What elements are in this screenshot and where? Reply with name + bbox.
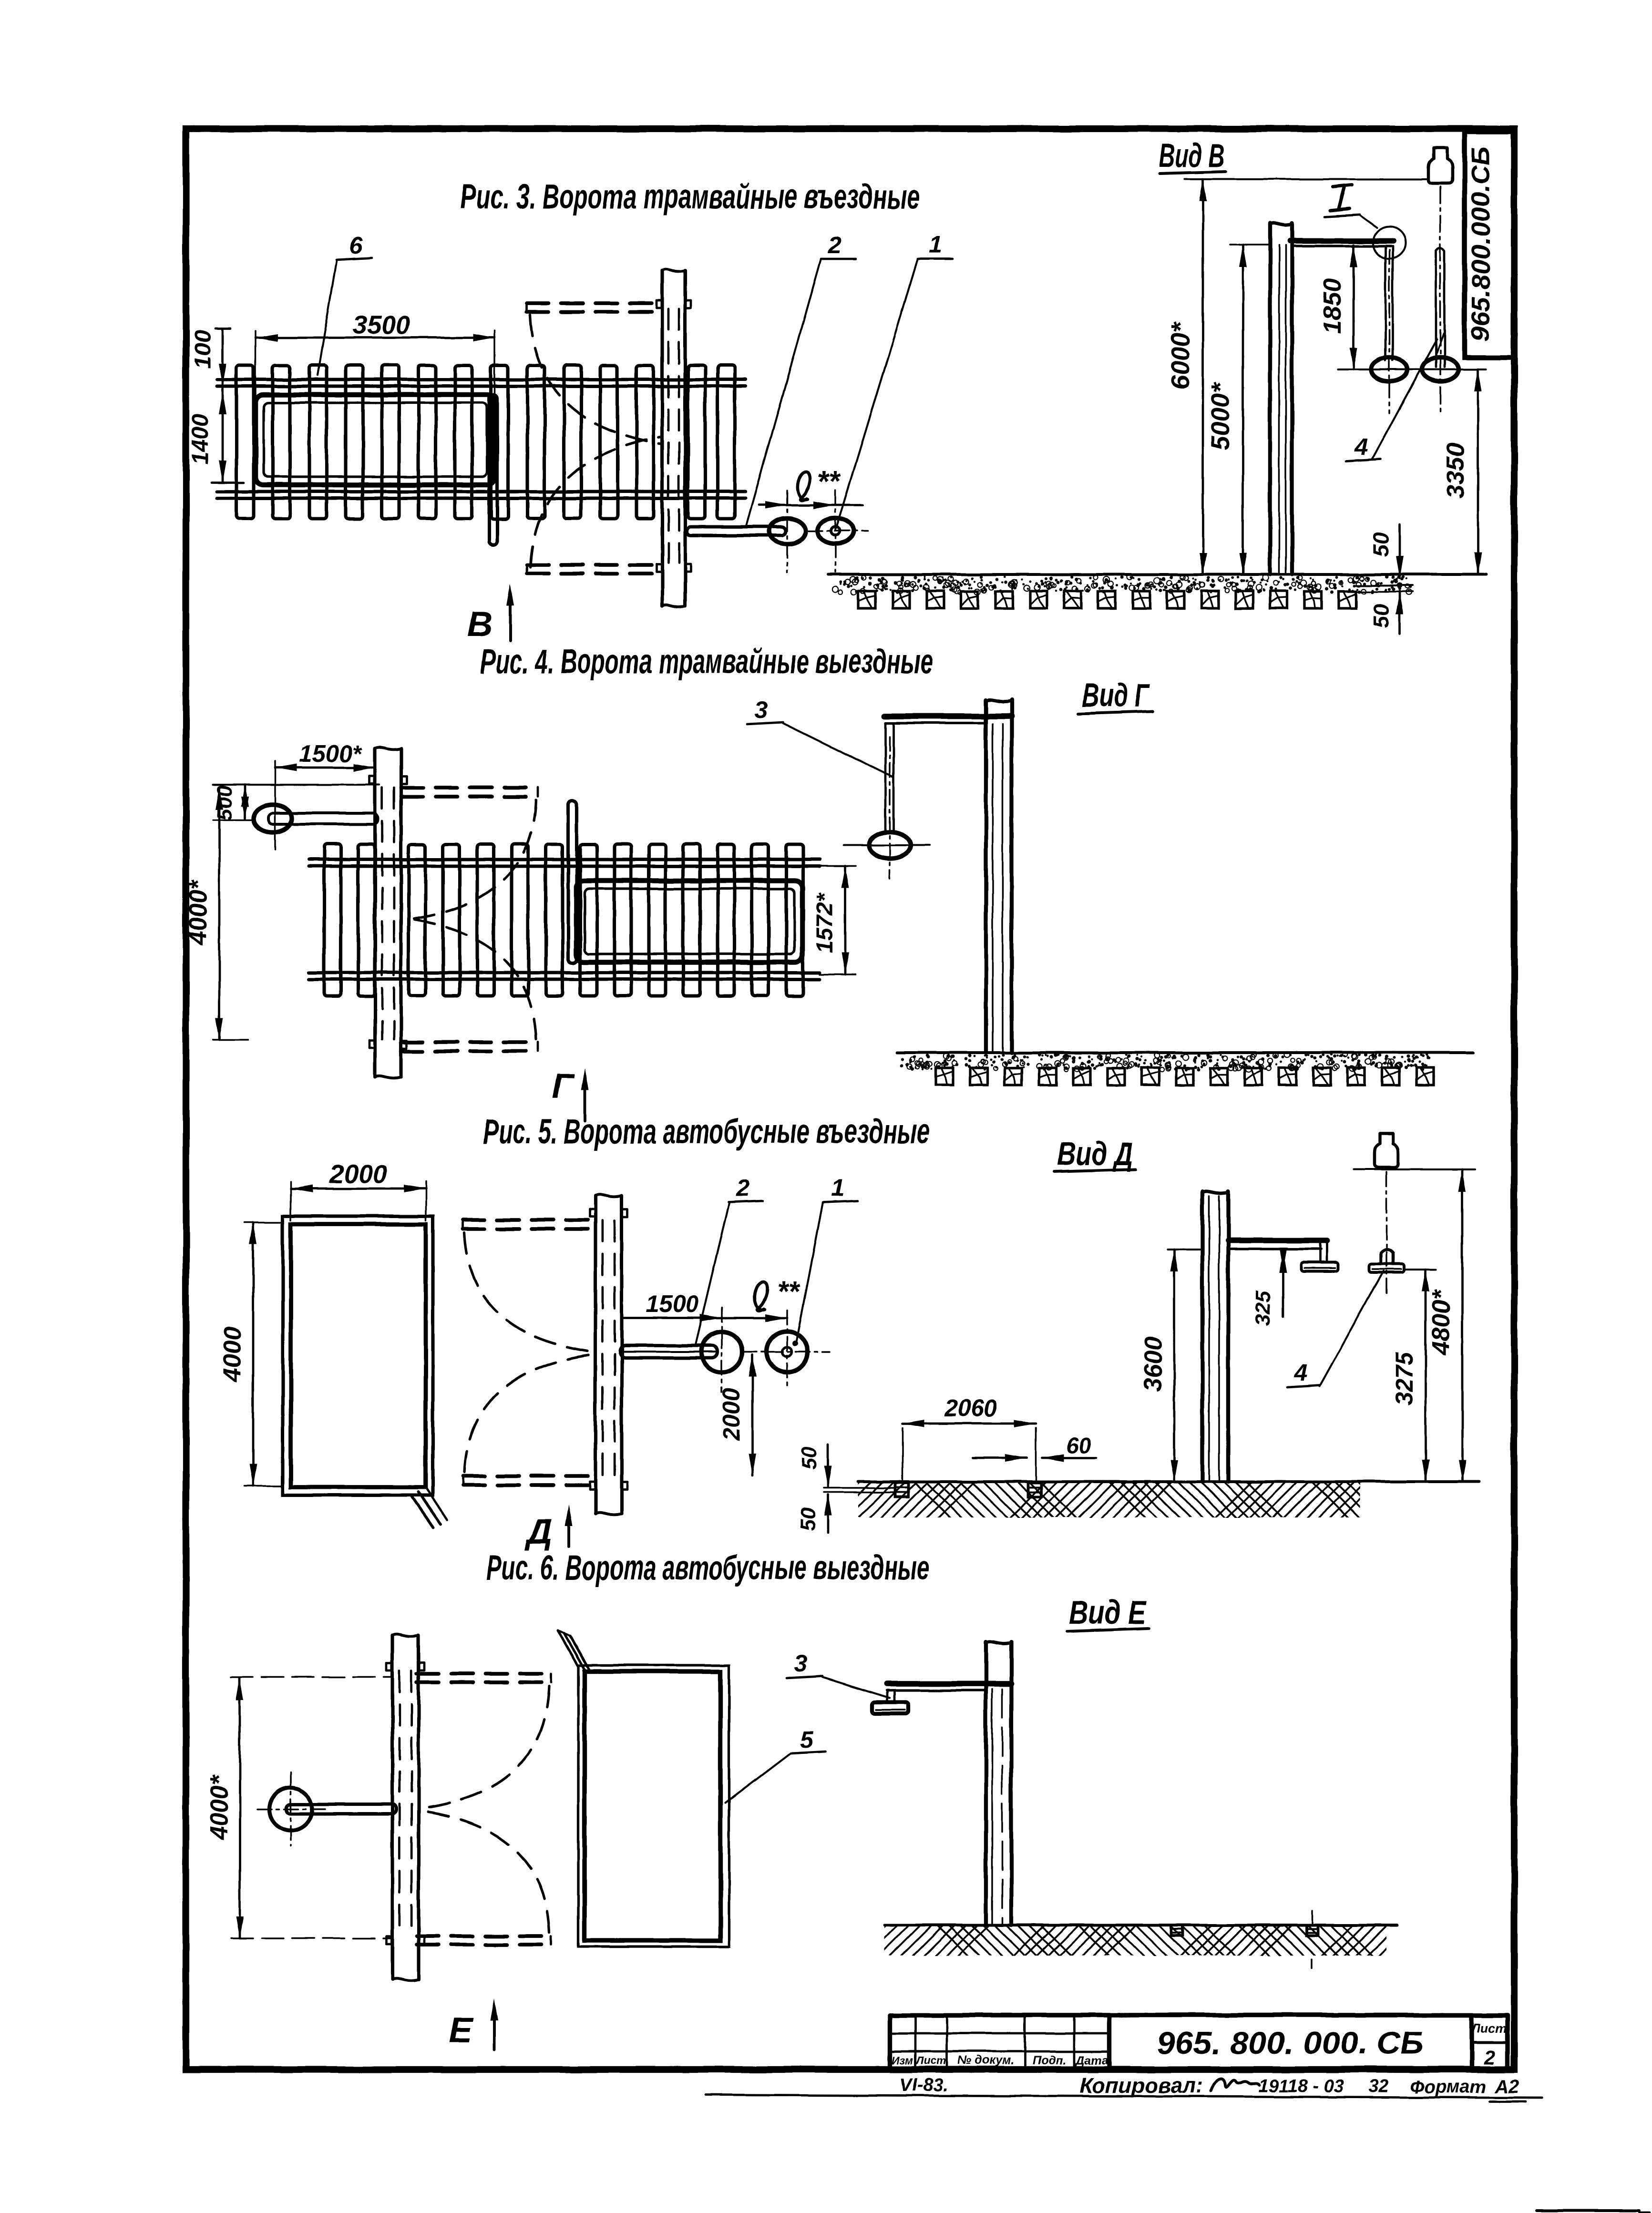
svg-text:2: 2 — [736, 1175, 749, 1201]
svg-text:3275: 3275 — [1391, 1352, 1417, 1405]
svg-text:2: 2 — [827, 232, 841, 258]
svg-text:Рис. 5. Ворота автобусные въез: Рис. 5. Ворота автобусные въездные — [483, 1113, 930, 1151]
svg-text:Вид Г: Вид Г — [1082, 676, 1150, 714]
svg-text:Изм: Изм — [892, 2054, 913, 2067]
svg-text:Лист: Лист — [1471, 2021, 1507, 2035]
svg-text:50: 50 — [798, 1446, 821, 1469]
svg-text:1: 1 — [929, 231, 942, 258]
svg-text:Рис. 3. Ворота трамвайные въез: Рис. 3. Ворота трамвайные въездные — [460, 178, 920, 216]
svg-text:4800*: 4800* — [1427, 1289, 1455, 1355]
svg-text:1572*: 1572* — [812, 892, 838, 953]
svg-text:4000*: 4000* — [185, 879, 212, 945]
svg-text:3600: 3600 — [1139, 1337, 1167, 1392]
svg-text:3350: 3350 — [1442, 443, 1470, 498]
svg-text:2: 2 — [1483, 2046, 1495, 2069]
svg-text:4: 4 — [1293, 1359, 1307, 1386]
svg-text:**: ** — [777, 1276, 800, 1308]
svg-text:2000: 2000 — [718, 1388, 745, 1441]
svg-text:60: 60 — [1066, 1433, 1091, 1458]
svg-text:1500*: 1500* — [299, 740, 363, 767]
svg-text:А2: А2 — [1494, 2076, 1519, 2097]
svg-text:1400: 1400 — [188, 414, 213, 465]
svg-text:50: 50 — [1369, 604, 1394, 628]
svg-text:325: 325 — [1252, 1291, 1275, 1326]
svg-text:6: 6 — [349, 232, 363, 259]
svg-text:VI-83.: VI-83. — [900, 2075, 948, 2095]
svg-text:1500: 1500 — [646, 1291, 698, 1317]
svg-text:**: ** — [817, 465, 841, 497]
svg-text:4: 4 — [1354, 433, 1368, 460]
svg-text:3: 3 — [755, 697, 768, 723]
svg-text:Подп.: Подп. — [1033, 2054, 1067, 2067]
svg-text:Вид В: Вид В — [1159, 137, 1225, 174]
svg-text:Е: Е — [449, 2010, 473, 2050]
svg-text:6000*: 6000* — [1166, 321, 1195, 389]
svg-text:4000*: 4000* — [205, 1774, 233, 1841]
svg-text:5000*: 5000* — [1206, 381, 1235, 450]
svg-text:Вид Д: Вид Д — [1057, 1135, 1133, 1172]
svg-text:Рис. 4. Ворота трамвайные выез: Рис. 4. Ворота трамвайные выездные — [480, 643, 933, 681]
svg-text:Г: Г — [552, 1066, 575, 1106]
svg-text:Лист: Лист — [915, 2054, 946, 2067]
svg-text:Д: Д — [524, 1512, 552, 1551]
svg-text:Копировал:: Копировал: — [1080, 2073, 1203, 2098]
svg-text:2060: 2060 — [944, 1395, 997, 1422]
svg-text:В: В — [467, 604, 493, 644]
svg-text:4000: 4000 — [219, 1326, 246, 1382]
svg-text:500: 500 — [213, 785, 236, 820]
svg-text:Дата: Дата — [1075, 2054, 1108, 2067]
svg-text:50: 50 — [1368, 532, 1393, 557]
svg-text:1: 1 — [831, 1175, 844, 1201]
svg-text:965.800.000.СБ: 965.800.000.СБ — [1467, 146, 1495, 342]
svg-text:5: 5 — [800, 1726, 813, 1753]
svg-text:3: 3 — [794, 1650, 807, 1677]
svg-text:Рис. 6. Ворота автобусные выез: Рис. 6. Ворота автобусные выездные — [486, 1549, 930, 1587]
svg-text:100: 100 — [190, 330, 215, 369]
svg-text:1850: 1850 — [1319, 278, 1346, 334]
svg-text:3500: 3500 — [353, 311, 410, 339]
svg-text:№ докум.: № докум. — [958, 2054, 1015, 2067]
svg-text:50: 50 — [796, 1507, 820, 1530]
svg-text:Формат: Формат — [1410, 2077, 1486, 2097]
svg-text:965. 800. 000. СБ: 965. 800. 000. СБ — [1157, 2025, 1424, 2060]
svg-text:32: 32 — [1368, 2076, 1388, 2096]
svg-text:2000: 2000 — [329, 1160, 387, 1188]
svg-text:Вид Е: Вид Е — [1069, 1594, 1147, 1631]
svg-text:19118 - 03: 19118 - 03 — [1259, 2076, 1344, 2096]
